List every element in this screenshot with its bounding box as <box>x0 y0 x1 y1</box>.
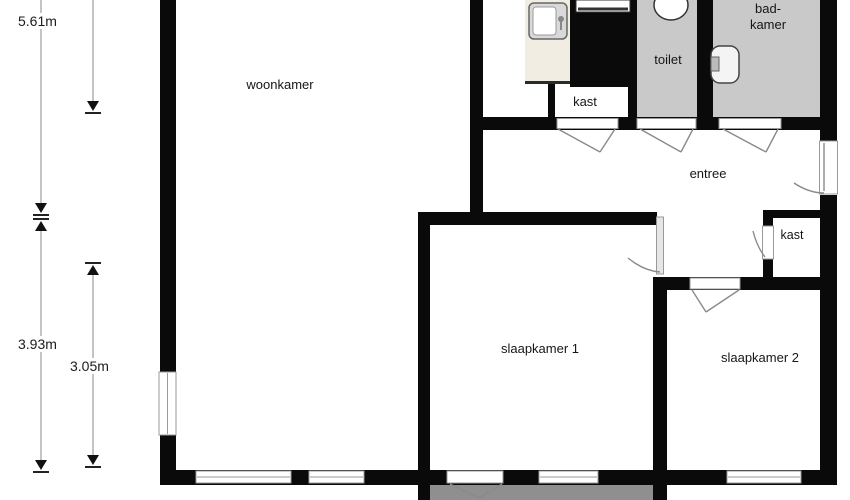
kitchen-sink-icon <box>529 3 567 39</box>
badkamer-label-line2: kamer <box>750 17 786 32</box>
slaapkamer1-label: slaapkamer 1 <box>480 341 600 357</box>
dimension-label-3-05m: 3.05m <box>68 358 111 374</box>
kast-hal-label: kast <box>762 227 822 243</box>
toilet-bowl-icon <box>654 0 688 20</box>
door-openings <box>557 119 838 290</box>
badkamer-label: bad- kamer <box>728 1 808 33</box>
kast-top-label: kast <box>555 94 615 110</box>
wash-basin-icon <box>711 46 739 83</box>
dimension-annotations <box>33 0 101 472</box>
plan-annotations <box>0 0 850 500</box>
toilet-label: toilet <box>638 52 698 68</box>
door-swing-lines <box>450 129 824 498</box>
stove-icon <box>576 0 630 12</box>
woonkamer-label: woonkamer <box>230 77 330 93</box>
window-icons <box>159 372 801 483</box>
entree-label: entree <box>668 166 748 182</box>
dimension-label-5-61m: 5.61m <box>16 13 59 29</box>
slaapkamer2-label: slaapkamer 2 <box>700 350 820 366</box>
dimension-label-3-93m: 3.93m <box>16 336 59 352</box>
badkamer-label-line1: bad- <box>755 1 781 16</box>
floorplan: woonkamer kast toilet bad- kamer entree … <box>0 0 850 500</box>
